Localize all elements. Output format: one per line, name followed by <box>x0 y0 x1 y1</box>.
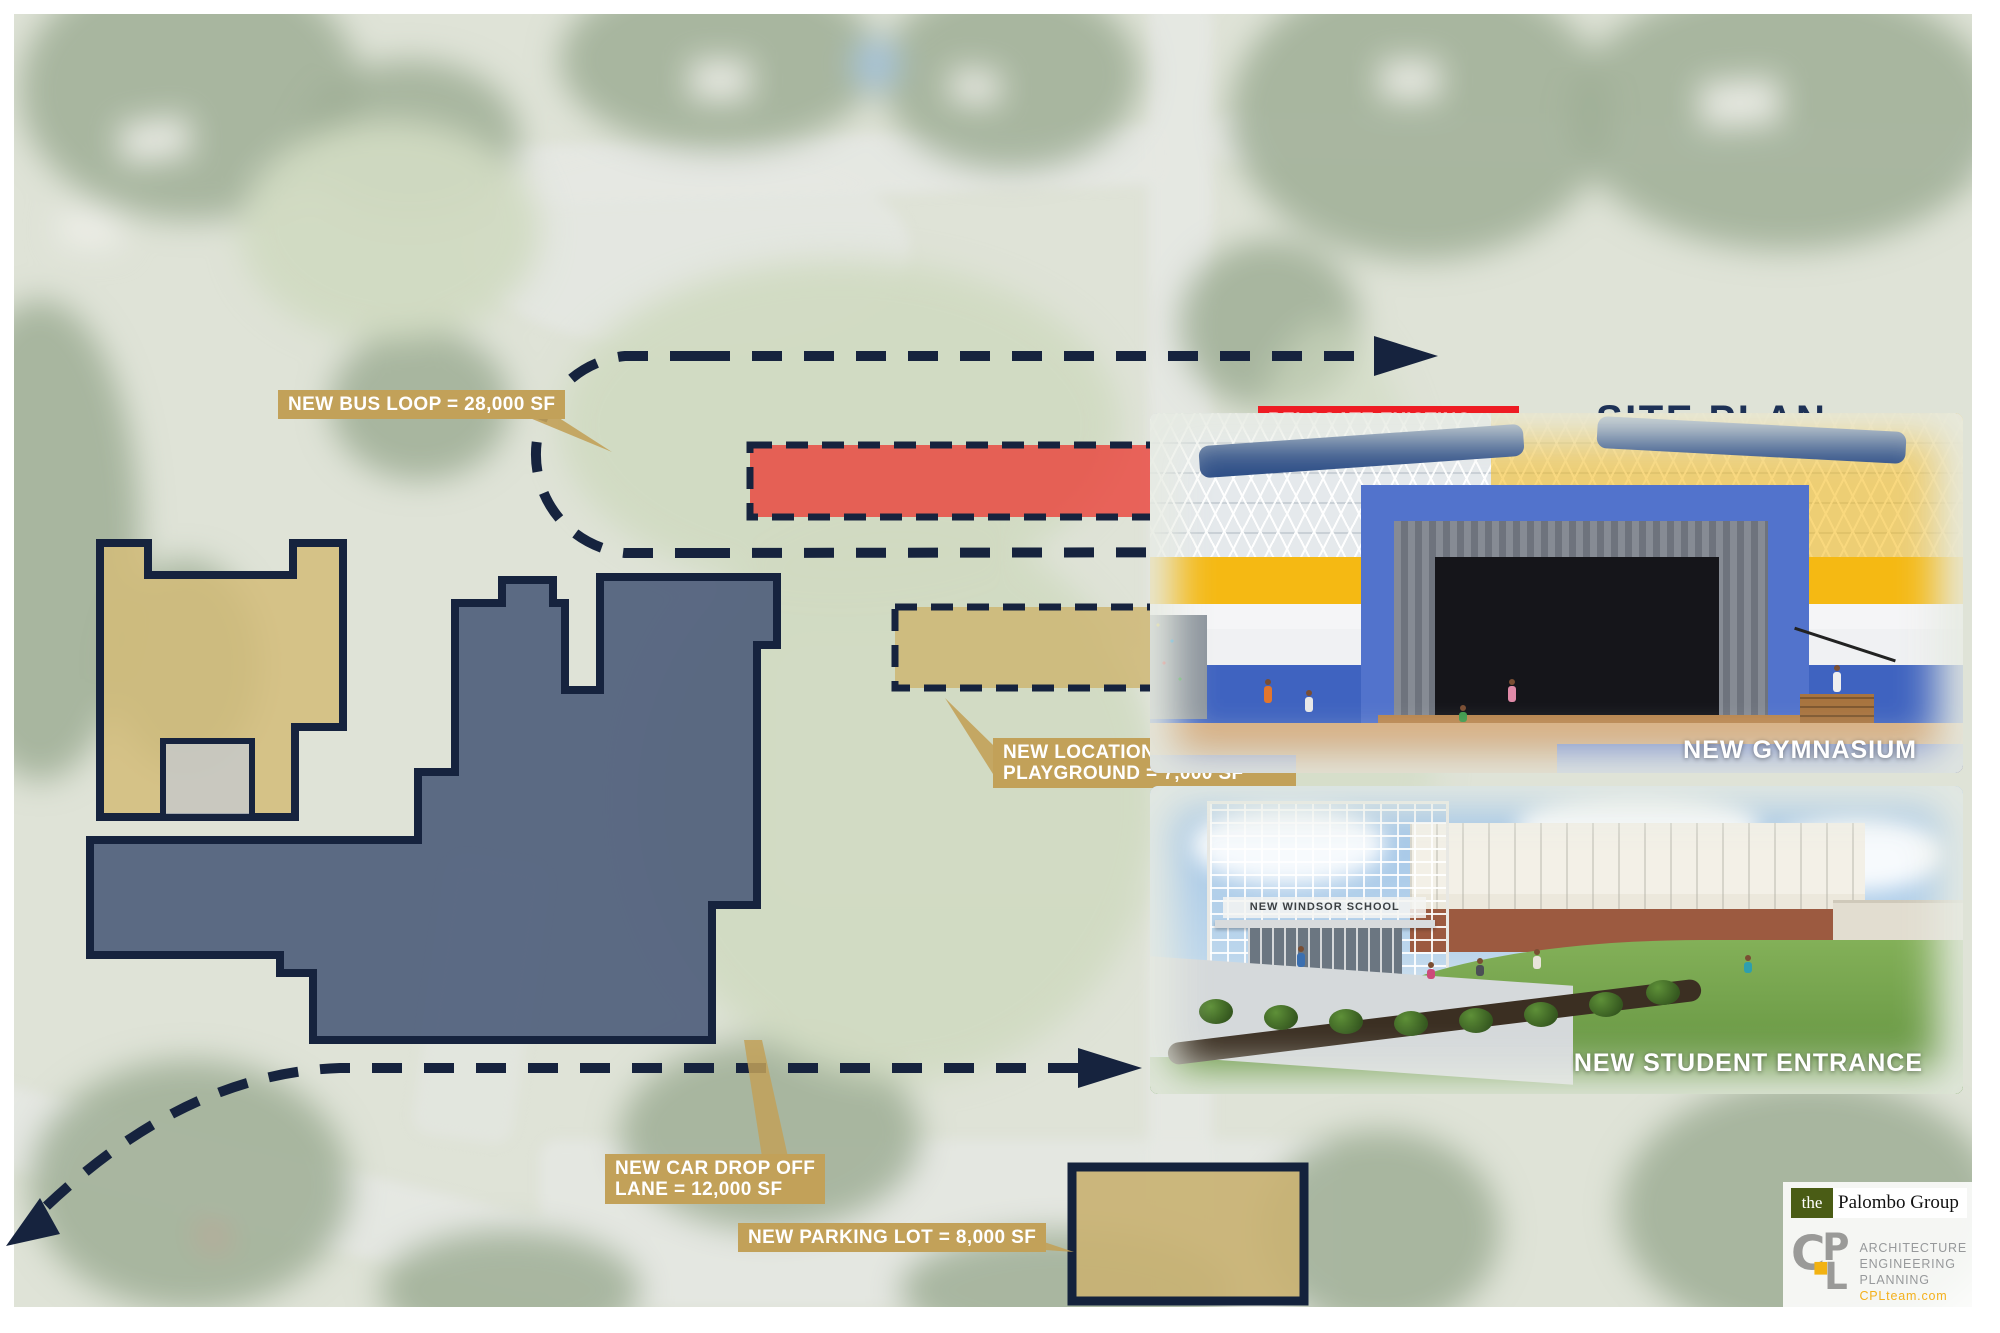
gymnasium-rendering: NEW GYMNASIUM <box>1150 413 1963 773</box>
cpl-website-link[interactable]: CPLteam.com <box>1859 1288 1967 1304</box>
palombo-group-logo: the Palombo Group <box>1791 1188 1967 1218</box>
parking-lot-label: NEW PARKING LOT = 8,000 SF <box>738 1223 1046 1252</box>
gym-stage-opening <box>1435 557 1720 715</box>
building-courtyard-cutout <box>163 741 252 817</box>
student-entrance-caption: NEW STUDENT ENTRANCE <box>1574 1049 1923 1078</box>
bus-loop-path <box>536 356 700 553</box>
cpl-service-engineering: ENGINEERING <box>1859 1256 1967 1272</box>
flow-arrow-top-head <box>1374 336 1438 376</box>
cpl-services: ARCHITECTURE ENGINEERING PLANNING CPLtea… <box>1859 1224 1967 1304</box>
car-drop-off-line1: NEW CAR DROP OFF <box>615 1158 815 1179</box>
parking-lot-area <box>1072 1167 1304 1301</box>
bus-loop-label: NEW BUS LOOP = 28,000 SF <box>278 390 565 419</box>
car-drop-off-leader <box>744 1040 788 1157</box>
palombo-name: Palombo Group <box>1833 1188 1967 1218</box>
cpl-service-architecture: ARCHITECTURE <box>1859 1240 1967 1256</box>
car-drop-off-label: NEW CAR DROP OFF LANE = 12,000 SF <box>605 1154 825 1204</box>
cpl-logo-mark: C P L <box>1791 1224 1853 1294</box>
palombo-the: the <box>1791 1188 1833 1218</box>
site-plan-board: NEW BUS LOOP = 28,000 SF RELOCATE EXISTI… <box>0 0 2000 1333</box>
new-location-leader <box>945 698 993 774</box>
gym-climbing-wall <box>1150 615 1207 719</box>
student-entrance-rendering: NEW WINDSOR SCHOOL NEW STUDENT ENTRANCE <box>1150 786 1963 1094</box>
car-drop-off-line2: LANE = 12,000 SF <box>615 1179 815 1200</box>
gymnasium-caption: NEW GYMNASIUM <box>1683 736 1917 765</box>
school-sign: NEW WINDSOR SCHOOL <box>1223 897 1426 919</box>
flow-arrow-bottom-line <box>34 1068 1078 1218</box>
cpl-service-planning: PLANNING <box>1859 1272 1967 1288</box>
flow-arrow-bottom-right-head <box>1078 1048 1142 1088</box>
cpl-letter-l: L <box>1824 1255 1848 1294</box>
branding-panel: the Palombo Group C P L ARCHITECTURE ENG… <box>1783 1182 1973 1312</box>
